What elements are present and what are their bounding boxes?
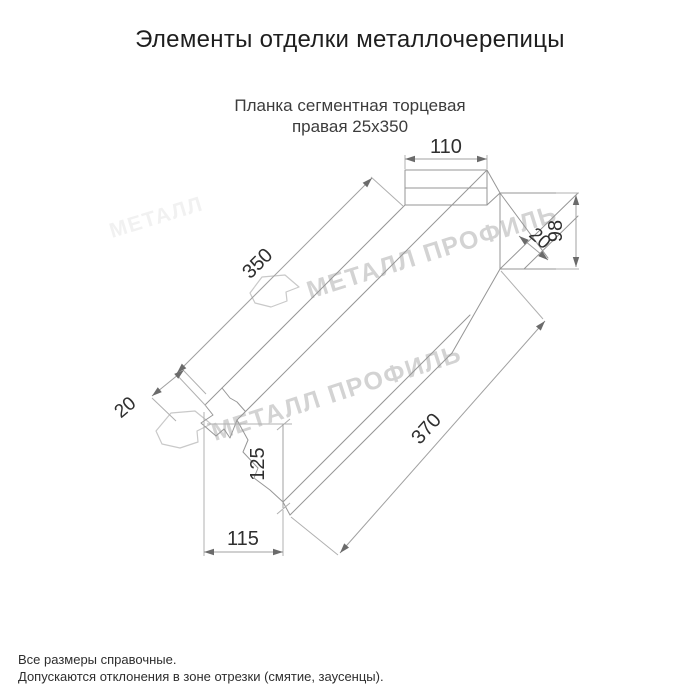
footer-note-line1: Все размеры справочные. [18, 651, 384, 668]
watermark-fragment: МЕТАЛЛ [107, 192, 206, 242]
drawing-page: Элементы отделки металлочерепицы Планка … [0, 0, 700, 700]
watermarks: МЕТАЛЛ МЕТАЛЛ ПРОФИЛЬ МЕТАЛЛ ПРОФИЛЬ [107, 192, 561, 448]
dimension-label-110: 110 [430, 136, 462, 158]
metal-profil-logo-icon [250, 275, 299, 307]
watermark-text: МЕТАЛЛ ПРОФИЛЬ [303, 199, 561, 304]
technical-drawing: МЕТАЛЛ МЕТАЛЛ ПРОФИЛЬ МЕТАЛЛ ПРОФИЛЬ [0, 0, 700, 700]
footer-note-line2: Допускаются отклонения в зоне отрезки (с… [18, 668, 384, 685]
dimension-label-125: 125 [247, 447, 269, 480]
dimension-label-20-left: 20 [111, 393, 141, 423]
dimension-label-350: 350 [238, 244, 277, 283]
footer-notes: Все размеры справочные. Допускаются откл… [18, 651, 384, 685]
metal-profil-logo-icon [156, 411, 211, 448]
dimension-label-115: 115 [227, 528, 259, 550]
dimension-label-370: 370 [407, 409, 446, 449]
